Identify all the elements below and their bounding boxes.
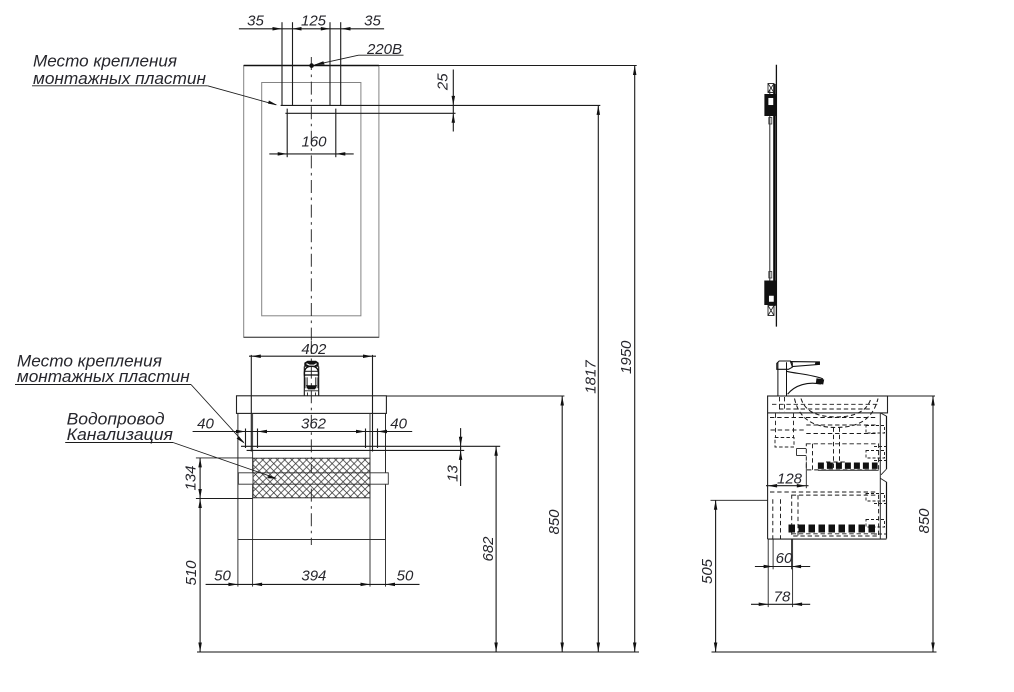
svg-text:монтажных пластин: монтажных пластин — [17, 368, 190, 386]
svg-text:505: 505 — [699, 558, 716, 584]
svg-text:25: 25 — [435, 73, 452, 91]
svg-text:78: 78 — [774, 588, 791, 605]
svg-text:монтажных пластин: монтажных пластин — [33, 70, 206, 88]
svg-text:Канализация: Канализация — [67, 426, 174, 444]
svg-text:40: 40 — [197, 416, 214, 433]
svg-text:134: 134 — [183, 465, 200, 490]
svg-text:50: 50 — [214, 567, 231, 584]
svg-text:35: 35 — [247, 12, 264, 29]
svg-text:160: 160 — [301, 134, 327, 151]
svg-text:125: 125 — [301, 12, 327, 29]
svg-text:1817: 1817 — [582, 360, 599, 394]
svg-text:682: 682 — [480, 536, 497, 562]
svg-text:35: 35 — [364, 12, 381, 29]
svg-text:Место крепления: Место крепления — [33, 53, 177, 71]
svg-text:394: 394 — [301, 567, 326, 584]
svg-text:510: 510 — [183, 560, 200, 586]
svg-text:50: 50 — [397, 567, 414, 584]
svg-text:362: 362 — [301, 416, 327, 433]
svg-text:13: 13 — [444, 465, 461, 482]
svg-text:40: 40 — [390, 416, 407, 433]
svg-text:850: 850 — [916, 508, 933, 534]
svg-text:850: 850 — [546, 509, 563, 535]
svg-text:60: 60 — [776, 550, 793, 567]
svg-text:1950: 1950 — [618, 340, 635, 374]
